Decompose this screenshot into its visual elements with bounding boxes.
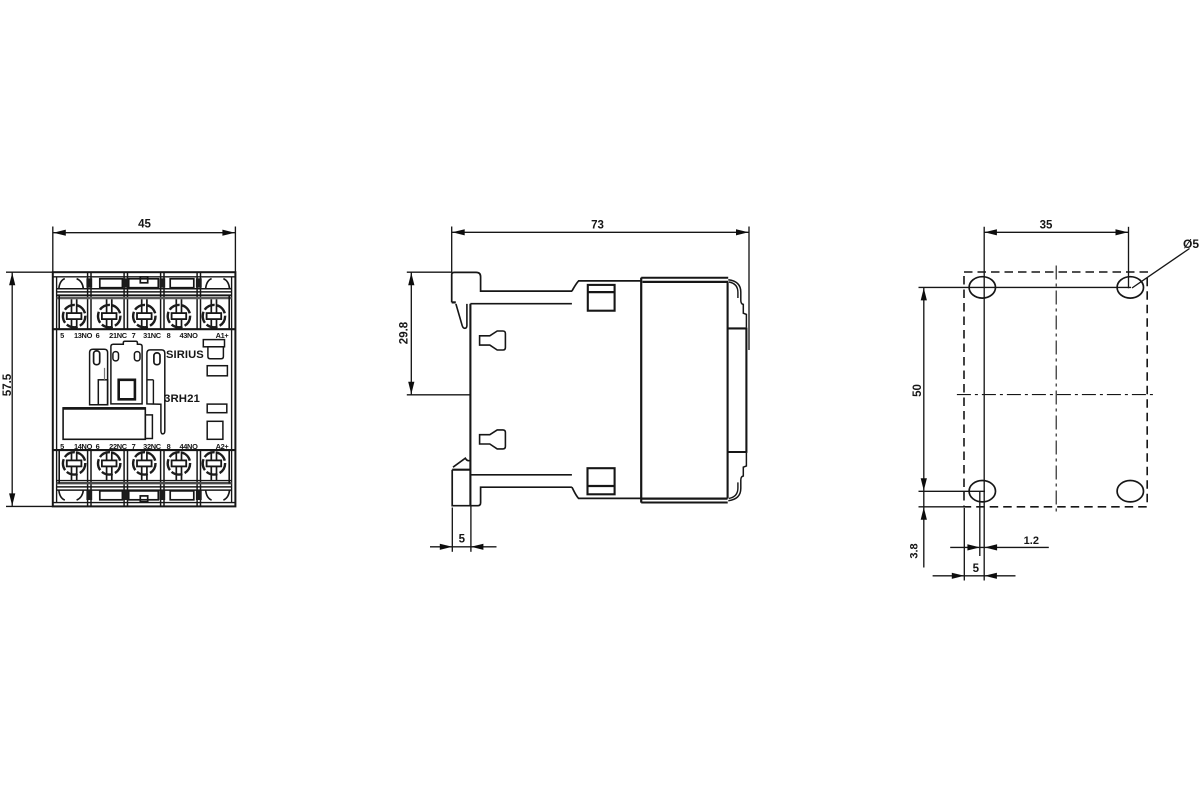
svg-text:14NO: 14NO xyxy=(74,442,93,451)
svg-text:8: 8 xyxy=(167,442,171,451)
svg-text:A2+: A2+ xyxy=(216,442,230,451)
svg-text:22NC: 22NC xyxy=(109,442,128,451)
svg-text:8: 8 xyxy=(167,331,171,340)
svg-text:5: 5 xyxy=(60,331,64,340)
svg-text:43NO: 43NO xyxy=(179,331,198,340)
svg-text:SIRIUS: SIRIUS xyxy=(166,349,204,361)
svg-text:7: 7 xyxy=(132,331,136,340)
svg-text:57.5: 57.5 xyxy=(2,373,14,396)
svg-text:3RH21: 3RH21 xyxy=(164,393,201,405)
svg-text:32NC: 32NC xyxy=(143,442,162,451)
svg-text:73: 73 xyxy=(591,220,604,232)
svg-text:35: 35 xyxy=(1040,219,1053,231)
svg-text:6: 6 xyxy=(96,442,100,451)
svg-text:29.8: 29.8 xyxy=(399,321,411,344)
svg-text:31NC: 31NC xyxy=(143,331,162,340)
svg-text:A1+: A1+ xyxy=(216,331,230,340)
svg-text:21NC: 21NC xyxy=(109,331,128,340)
svg-text:3.8: 3.8 xyxy=(908,543,920,558)
svg-text:5: 5 xyxy=(973,563,980,575)
svg-text:1.2: 1.2 xyxy=(1024,535,1039,547)
svg-text:5: 5 xyxy=(60,442,64,451)
svg-text:50: 50 xyxy=(912,384,924,397)
svg-text:45: 45 xyxy=(138,219,151,231)
svg-text:13NO: 13NO xyxy=(74,331,93,340)
svg-text:7: 7 xyxy=(132,442,136,451)
svg-text:Ø5: Ø5 xyxy=(1183,237,1199,251)
svg-text:44NO: 44NO xyxy=(179,442,198,451)
svg-text:5: 5 xyxy=(459,534,466,546)
svg-text:6: 6 xyxy=(96,331,100,340)
